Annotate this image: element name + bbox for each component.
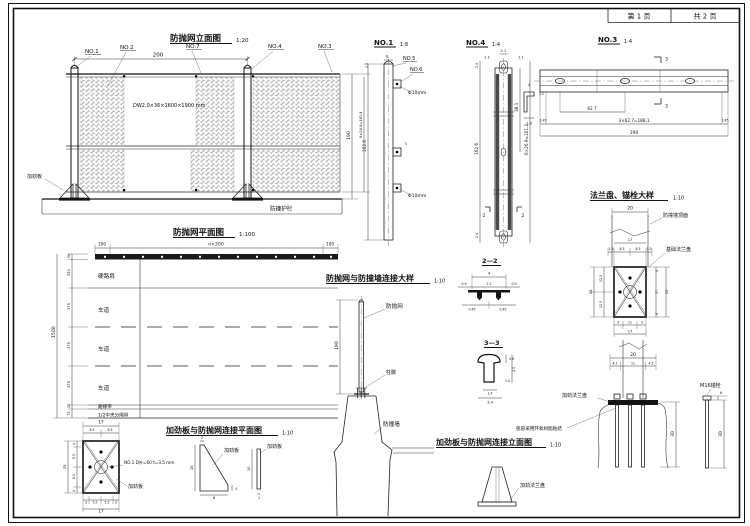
stiffener-plan-linework: [64, 422, 119, 512]
label-no6: NO.6: [410, 67, 422, 73]
hole-callout: Φ10mm: [408, 193, 427, 199]
plan-view: 防抛网平面图 1:100 100 n×200 100: [51, 227, 338, 419]
row-label: 车道: [98, 384, 110, 392]
label-no7: NO.7: [186, 44, 200, 50]
stiffener-bar-detail: 10 1 加劲板: [247, 443, 282, 500]
dim-label: 4: [72, 443, 76, 445]
dim-label: 100: [326, 242, 334, 247]
mesh-panel: [80, 77, 124, 146]
section-2-2: 2—2 4 0.9 2.2 0.9 0.45 0.45: [458, 257, 520, 312]
dim-label: 5.5: [92, 501, 97, 505]
label-no2: NO.2: [120, 45, 134, 51]
plan-row-labels: 硬路肩 车道 车道 车道 路缘带 1/2中央分隔带: [98, 272, 129, 419]
dim-label: 20: [630, 352, 636, 358]
dim-label: 190: [346, 131, 352, 140]
no4-detail: NO.4 1:4 2.2 1.1 1.1 2.4 2.4: [466, 39, 530, 248]
dim-label: 12.5: [599, 275, 603, 282]
dim-label: 30: [718, 431, 724, 437]
dim-label: 3: [85, 501, 87, 505]
dim-label: 3.4: [487, 401, 493, 405]
dim-label: 17: [98, 509, 104, 514]
dim-label: 30: [670, 431, 676, 437]
dim-label: 2: [201, 436, 203, 440]
dim-label: 20: [627, 206, 633, 212]
dim-label: 100: [98, 242, 106, 247]
conn-linework: [334, 296, 434, 516]
plan-left-dimensions: 50 250 375 375 375 25 75 1500: [51, 254, 88, 418]
dim-label: 11: [628, 321, 632, 325]
plan-title: 防抛网平面图: [173, 227, 224, 238]
flange-title: 法兰盘、锚栓大样: [590, 190, 654, 200]
label-no4: NO.4: [268, 44, 282, 50]
mesh-panel: [191, 149, 234, 192]
flange-trapezoid-detail: 加劲法兰盘: [478, 467, 545, 506]
dim-label: 200: [153, 53, 164, 59]
dim-label: 0.45: [468, 308, 475, 312]
label-no5: NO.5: [403, 56, 415, 62]
dim-label: 38.1: [514, 102, 519, 112]
section-marker: 2: [483, 213, 486, 219]
section-3-3-linework: [478, 355, 512, 399]
plan-scale: 1:100: [239, 232, 256, 238]
stiffener-label: 加劲板: [224, 447, 239, 454]
plan-fence-bar: [95, 254, 338, 260]
guardrail-label: 防撞护栏: [270, 205, 293, 213]
dim-label: 8: [213, 496, 216, 500]
dim-label: 17: [628, 330, 633, 334]
dim-label: 4: [488, 272, 491, 276]
wall-label: 防撞墙: [383, 420, 400, 428]
post-spec: NO.1 D外=60 t=3.5 mm: [124, 459, 174, 466]
dim-label: 8.5: [72, 454, 76, 459]
flange-scale: 1:10: [673, 196, 684, 202]
dim-label: 17: [98, 420, 104, 425]
no3-scale: 1:4: [624, 39, 632, 45]
dim-label: 1.6: [526, 122, 532, 126]
section-2-2-linework: [458, 274, 520, 309]
conn-scale: 1:10: [434, 279, 445, 285]
dim-label: 1.1: [518, 56, 524, 60]
dim-label: 2.45: [721, 119, 728, 123]
dim-label: 375: [67, 381, 71, 388]
mesh-panel: [253, 77, 340, 146]
dim-label: 375: [67, 342, 71, 349]
section-3-3: 3—3 0.6 4.5 1.0 1.4 3.4: [478, 339, 516, 405]
dim-label: 1.1: [484, 56, 490, 60]
dim-label: 2.2: [501, 49, 507, 53]
elevation-scale: 1:20: [236, 38, 249, 44]
dim-label: 4: [235, 487, 237, 491]
row-label: 硬路肩: [98, 272, 115, 280]
flange-label: 加劲法兰盘: [562, 392, 587, 399]
base-plate-label: 基础法兰盘: [666, 246, 691, 253]
stiffener-plan-scale: 1:10: [282, 431, 293, 437]
mesh-panels: [80, 75, 340, 192]
no4-scale: 1:4: [492, 42, 500, 48]
dim-label: 6: [720, 391, 722, 395]
section-marker: 2: [522, 213, 525, 219]
section-3-3-title: 3—3: [484, 339, 500, 347]
dim-label: 190: [334, 341, 340, 350]
dim-label: 8.5: [619, 247, 624, 251]
flange-anchor-detail: 法兰盘、锚栓大样 1:10: [589, 190, 691, 398]
dim-label: 25: [63, 464, 67, 469]
dim-label: 25: [67, 404, 71, 408]
row-label: 车道: [98, 306, 110, 314]
page-total: 共 2 页: [694, 12, 717, 21]
mesh-panel: [253, 149, 340, 192]
foot-label: 柱脚: [386, 369, 396, 376]
dim-label: 1.1: [539, 92, 544, 96]
net-label: 防抛网: [386, 302, 403, 310]
anchor-assembly: 30 加劲法兰盘 底部采用环氧树脂粘结: [516, 392, 680, 468]
dim-label: n×200: [208, 242, 224, 248]
label-no3: NO.3: [318, 44, 332, 50]
dim-label: 10: [247, 466, 251, 471]
no1-title: NO.1: [374, 39, 393, 47]
dim-label: 1.0: [505, 379, 510, 383]
dim-label: 50: [67, 254, 71, 258]
stiffener-label: 加劲板: [27, 173, 42, 180]
elevation-view: 防抛网立面图 1:20: [27, 33, 370, 214]
dim-label: 1.5: [646, 247, 651, 251]
no4-title: NO.4: [466, 39, 485, 47]
no1-detail: NO.1 1:8 8 162.6 NO.5 NO.6 Φ10mm Φ10mm 5: [362, 39, 427, 246]
dim-label: 190: [630, 130, 639, 136]
dim-label: 25: [665, 289, 669, 294]
dim-label: 17: [655, 290, 659, 294]
dim-label: 1: [258, 496, 260, 500]
mesh-panel: [196, 77, 234, 146]
dim-label: 1500: [51, 326, 57, 338]
dim-label: 25: [589, 289, 593, 294]
stiffener-label: 加劲板: [128, 483, 143, 490]
anchor-bolt-detail: 6 30 M16锚栓: [700, 382, 727, 468]
dim-label: 0.9: [461, 282, 466, 286]
dim-label: 375: [67, 303, 71, 310]
dim-label: 3: [617, 321, 619, 325]
dim-label: 8.5: [89, 428, 94, 432]
hole-callout: Φ10mm: [408, 90, 427, 96]
dim-label: 11: [631, 362, 635, 366]
dim-label: 1.5: [608, 247, 613, 251]
dim-label: 4.5: [648, 362, 653, 366]
dim-label: 0.6: [509, 357, 514, 361]
mesh-panel: [80, 149, 124, 192]
net-wall-connection-detail: 防抛网与防撞墙连接大样 1:10 190 防抛网 柱脚 防撞墙: [326, 273, 445, 516]
stiffener-elev-title: 加劲板与防抛网连接立面图: [435, 437, 532, 447]
dim-label: 75: [67, 411, 71, 415]
row-label: 车道: [98, 345, 110, 353]
dim-label: 8.5: [635, 247, 640, 251]
mesh-spec: DW2.0×36×1600×1900 mm: [133, 103, 206, 109]
dim-label: 0.9: [511, 282, 516, 286]
dim-label: 1.1: [365, 63, 369, 68]
dim-label: 2.4: [475, 63, 479, 68]
dim-label: 17: [628, 238, 633, 242]
label-no1: NO.1: [85, 49, 99, 55]
dim-label: 15: [190, 465, 194, 470]
plan-top-dimension: 100 n×200 100: [95, 242, 338, 255]
no3-linework: [534, 57, 734, 136]
dim-label: 4: [528, 83, 530, 87]
dim-label: 6×26.9=161.2: [524, 124, 529, 155]
row-label: 1/2中央分隔带: [98, 412, 129, 419]
row-label: 路缘带: [98, 403, 112, 410]
dim-label: 12.5: [599, 301, 603, 308]
no3-detail: NO.3 1:4 3 3 62.7: [534, 36, 734, 136]
wall-top-label: 防撞墙顶面: [663, 212, 688, 219]
elevation-title: 防抛网立面图: [170, 33, 221, 44]
dim-label: 2.45: [539, 119, 546, 123]
dim-label: 2.4: [475, 233, 479, 238]
dim-label: 162.6: [362, 140, 367, 152]
no3-title: NO.3: [598, 36, 617, 44]
section-2-2-title: 2—2: [482, 257, 498, 265]
dim-label: 4: [72, 490, 76, 492]
dim-label: 0.45: [499, 308, 506, 312]
dim-label: 6×26.9=161.4: [359, 111, 363, 138]
stiffener-plan-view: 加劲板与防抛网连接平面图 1:10: [63, 420, 293, 514]
elevation-right-dimensions: 190 6×26.9=161.4 1.1: [342, 63, 370, 199]
dim-label: 3: [641, 321, 643, 325]
bolt-label: M16锚栓: [700, 382, 721, 389]
no1-linework: [364, 57, 401, 246]
dim-label: 4: [655, 270, 659, 272]
dim-label: 5.5: [104, 501, 109, 505]
flange-label: 加劲法兰盘: [520, 482, 545, 489]
stiffener-triangle-detail: 2 15 8 4 加劲板: [190, 436, 239, 500]
page-number: 第 1 页: [628, 12, 651, 21]
conn-title: 防抛网与防撞墙连接大样: [326, 273, 414, 283]
dim-label: 8.5: [107, 428, 112, 432]
epoxy-note: 底部采用环氧树脂粘结: [516, 425, 562, 432]
dim-label: 1.4: [487, 392, 492, 396]
dim-label: 4.5: [512, 367, 516, 372]
section-marker: 3: [665, 104, 668, 110]
dim-label: 4: [655, 313, 659, 315]
dim-label: 3×62.7=188.1: [619, 118, 650, 123]
dim-label: 8.5: [72, 474, 76, 479]
plan-road-lines: [88, 260, 338, 419]
dim-label: 5: [405, 142, 407, 146]
dim-label: 62.7: [587, 106, 597, 111]
dim-label: 2.2: [486, 282, 491, 286]
dim-label: 3: [115, 501, 117, 505]
drawing-canvas: 第 1 页 共 2 页 防抛网立面图 1:20: [0, 0, 750, 526]
stiffener-label: 加劲板: [267, 443, 282, 450]
drawing-sheet: 第 1 页 共 2 页 防抛网立面图 1:20: [0, 0, 750, 526]
dim-label: 4.5: [612, 362, 617, 366]
stiffener-elevation-view: 加劲板与防抛网连接立面图 1:10 加劲法兰盘 30: [435, 382, 727, 506]
section-marker: 3: [665, 57, 668, 63]
stiffener-elev-scale: 1:10: [550, 443, 561, 449]
dim-label: 250: [67, 268, 71, 276]
dim-label: 162.6: [474, 143, 479, 155]
no1-scale: 1:8: [400, 42, 408, 48]
stiffener-plan-title: 加劲板与防抛网连接平面图: [165, 425, 262, 435]
